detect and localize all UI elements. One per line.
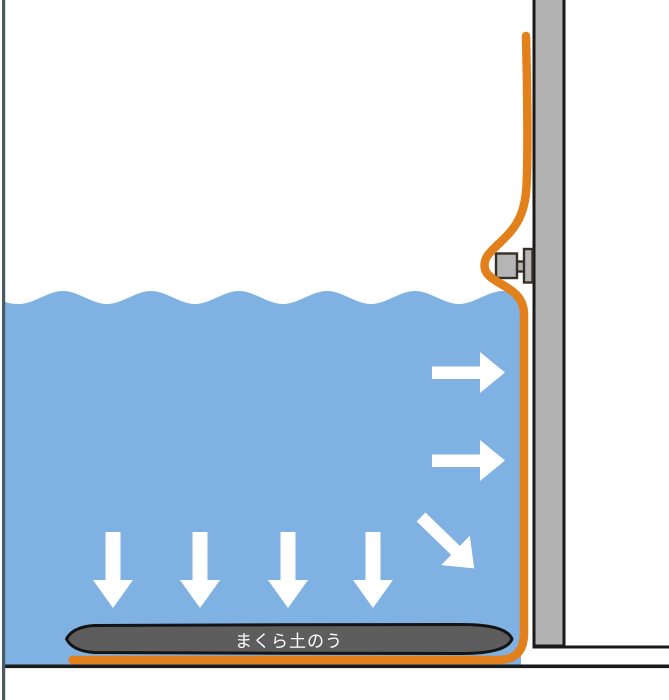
left-frame-line bbox=[2, 0, 5, 700]
ground-line bbox=[2, 665, 669, 669]
flood-barrier-diagram: まくら土のう bbox=[0, 0, 669, 700]
clamp-box bbox=[496, 254, 517, 279]
clamp-wall-plate bbox=[524, 249, 533, 283]
sheet-clamp bbox=[496, 249, 533, 283]
water-body bbox=[5, 291, 521, 666]
wall-base-line bbox=[533, 646, 669, 649]
diagram-canvas: まくら土のう bbox=[0, 0, 669, 700]
sandbag-label: まくら土のう bbox=[235, 632, 343, 651]
wall bbox=[534, 0, 564, 646]
